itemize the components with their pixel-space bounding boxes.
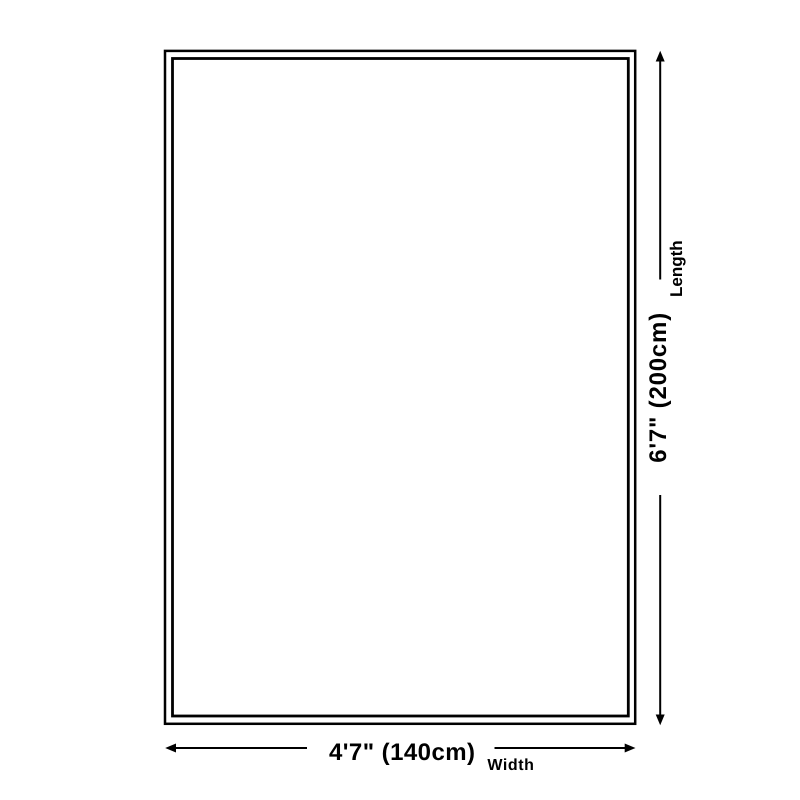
svg-text:6'7" (200cm): 6'7" (200cm) (645, 313, 672, 463)
svg-text:4'7" (140cm): 4'7" (140cm) (329, 739, 475, 766)
svg-text:Width: Width (487, 757, 534, 774)
svg-text:Length: Length (667, 240, 686, 297)
